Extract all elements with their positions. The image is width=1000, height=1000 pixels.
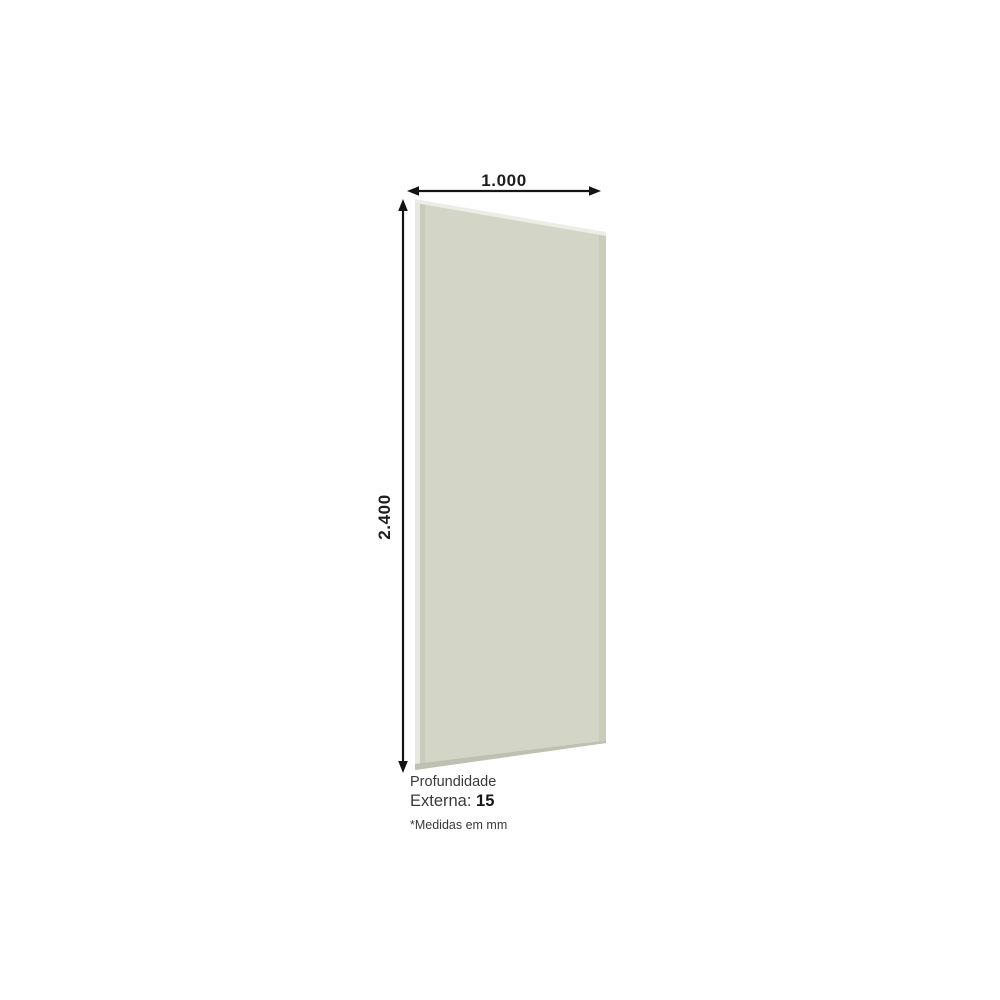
height-dimension-label: 2.400: [375, 494, 394, 540]
height-arrowhead-bottom-icon: [398, 761, 408, 773]
depth-prefix: Externa:: [410, 792, 476, 810]
panel-left-edge-highlight: [415, 203, 420, 770]
dimension-diagram: 1.000 2.400 Profundidade Externa: 15 *Me…: [0, 0, 1000, 1000]
width-dimension: 1.000: [407, 171, 601, 196]
panel-face: [415, 203, 606, 770]
panel-left-edge-shadow: [420, 204, 425, 769]
panel-diagram-svg: 1.000 2.400: [0, 0, 1000, 1000]
depth-title: Profundidade: [410, 774, 507, 791]
panel: [415, 199, 606, 770]
depth-line: Externa: 15: [410, 792, 507, 811]
width-arrowhead-left-icon: [407, 186, 419, 196]
width-dimension-label: 1.000: [481, 171, 527, 190]
depth-value: 15: [476, 792, 494, 810]
units-footnote: *Medidas em mm: [410, 818, 507, 833]
depth-annotation: Profundidade Externa: 15 *Medidas em mm: [410, 774, 507, 832]
height-arrowhead-top-icon: [398, 199, 408, 211]
width-arrowhead-right-icon: [589, 186, 601, 196]
panel-right-edge: [599, 235, 606, 744]
height-dimension: 2.400: [375, 199, 408, 773]
